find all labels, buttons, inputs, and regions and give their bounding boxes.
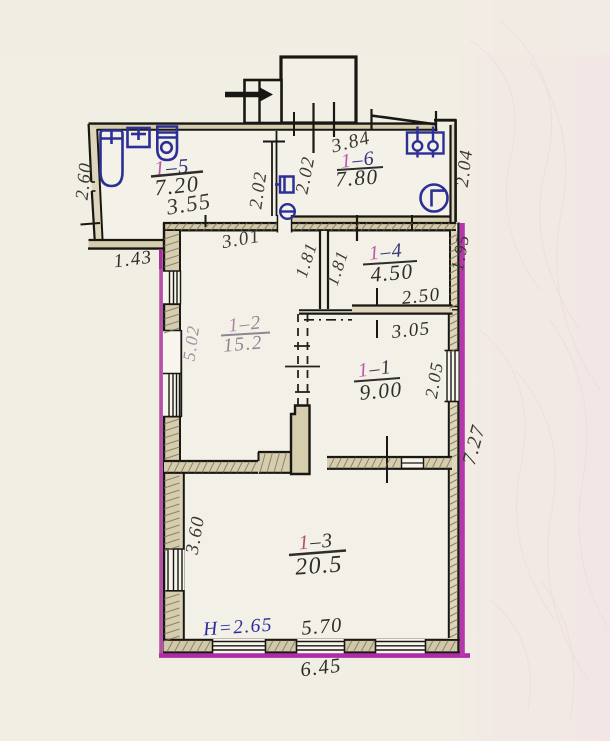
svg-text:5.70: 5.70	[300, 614, 343, 640]
svg-text:7.80: 7.80	[335, 165, 380, 192]
svg-text:4.50: 4.50	[369, 259, 414, 287]
svg-text:2.50: 2.50	[401, 284, 442, 309]
svg-text:20.5: 20.5	[294, 551, 343, 580]
svg-text:2.60: 2.60	[73, 161, 97, 201]
svg-text:3.05: 3.05	[390, 318, 432, 343]
svg-text:9.00: 9.00	[358, 377, 403, 405]
svg-text:15.2: 15.2	[222, 332, 263, 356]
